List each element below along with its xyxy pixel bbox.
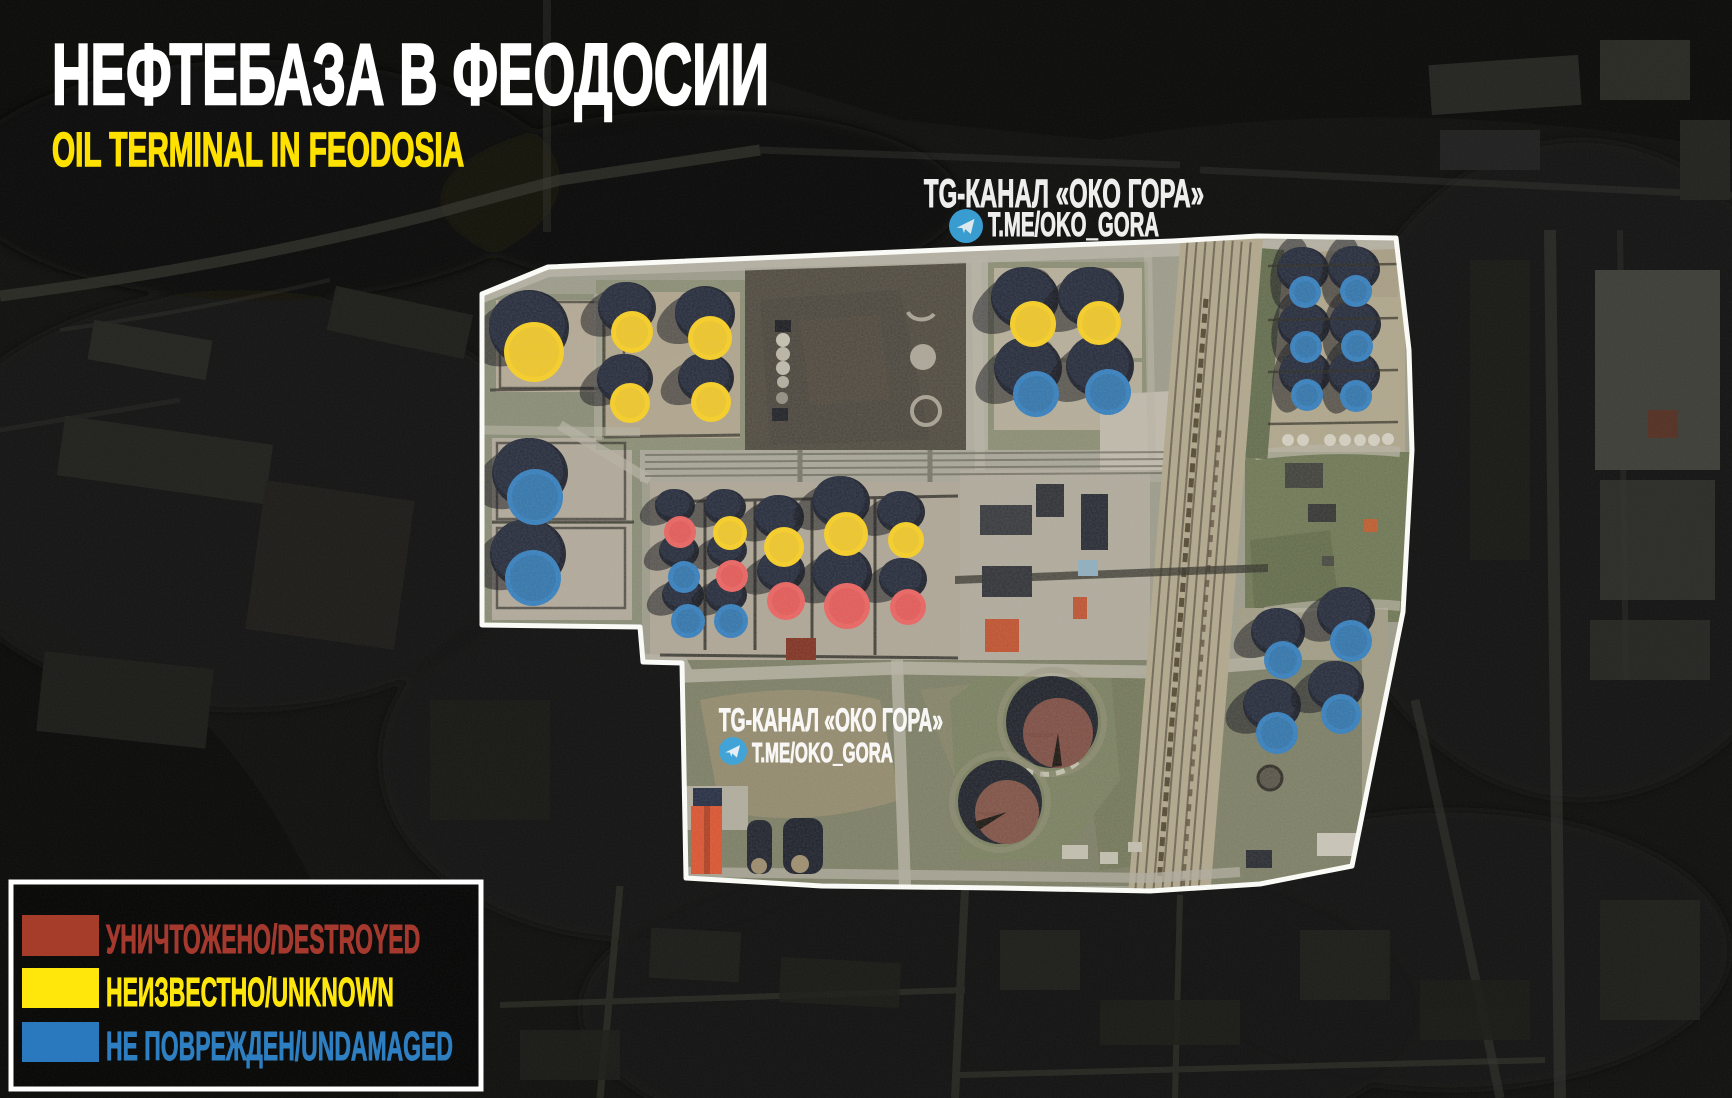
svg-text:TG-КАНАЛ «ОКО ГОРА»: TG-КАНАЛ «ОКО ГОРА»: [719, 702, 943, 738]
svg-text:НЕ ПОВРЕЖДЕН/UNDAMAGED: НЕ ПОВРЕЖДЕН/UNDAMAGED: [106, 1024, 453, 1070]
svg-text:OIL TERMINAL IN FEODOSIA: OIL TERMINAL IN FEODOSIA: [52, 124, 464, 177]
svg-text:НЕИЗВЕСТНО/UNKNOWN: НЕИЗВЕСТНО/UNKNOWN: [106, 970, 394, 1016]
svg-text:УНИЧТОЖЕНО/DESTROYED: УНИЧТОЖЕНО/DESTROYED: [106, 917, 420, 963]
svg-text:НЕФТЕБАЗА В ФЕОДОСИИ: НЕФТЕБАЗА В ФЕОДОСИИ: [52, 27, 769, 123]
svg-text:T.ME/OKO_GORA: T.ME/OKO_GORA: [752, 737, 893, 769]
svg-text:T.ME/OKO_GORA: T.ME/OKO_GORA: [988, 206, 1159, 244]
